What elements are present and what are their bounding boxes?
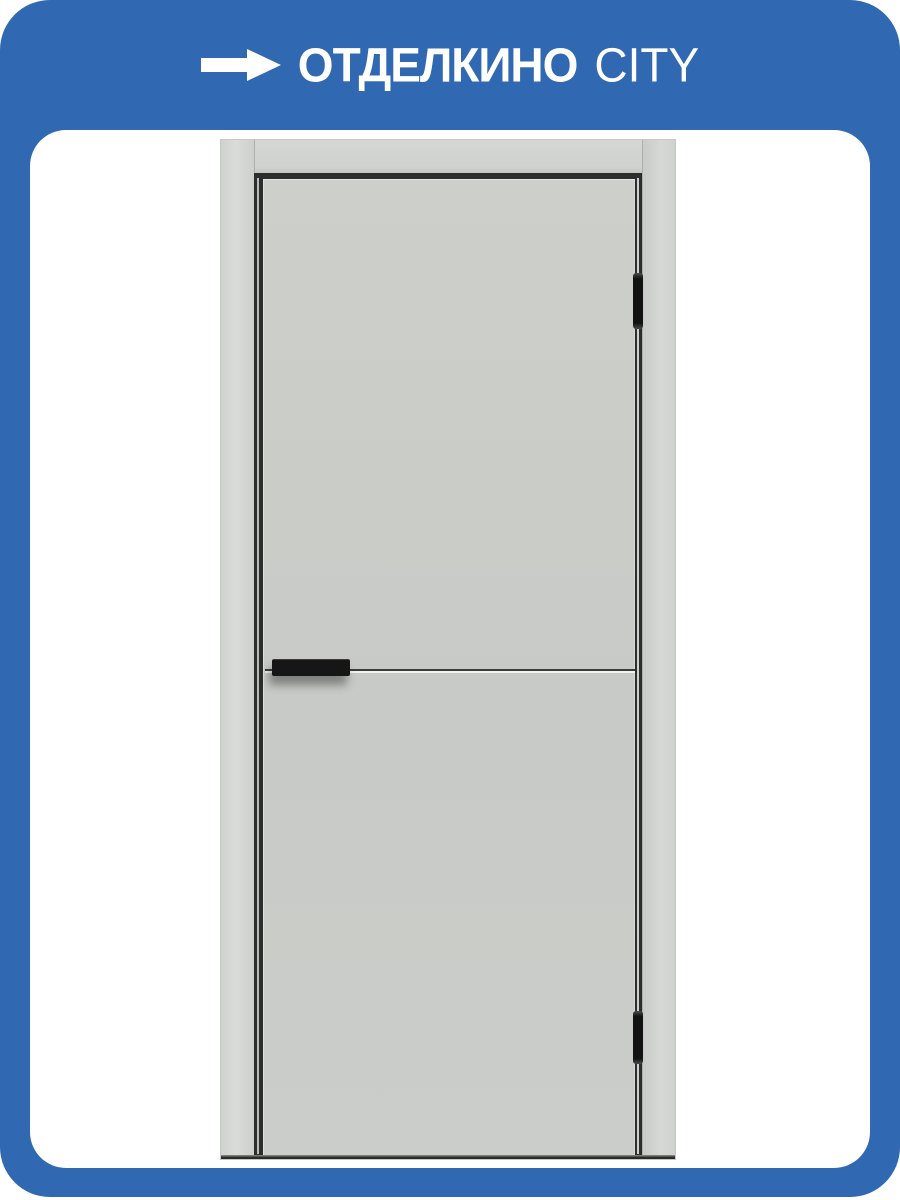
arrow-right-icon (201, 47, 281, 83)
brand-banner: ОТДЕЛКИНО CITY (0, 0, 900, 130)
door-frame-left-jamb (221, 140, 255, 1159)
door-bottom-shadow (221, 1155, 675, 1159)
brand-name: ОТДЕЛКИНО (298, 41, 578, 89)
door-frame-header (255, 140, 642, 173)
door-frame-right-jamb (642, 140, 675, 1159)
door-hinge-bottom (633, 1011, 643, 1064)
door-hinge-top (633, 273, 643, 329)
door-handle (272, 659, 350, 676)
door-stop-line-left (257, 178, 259, 1154)
door-product-image (220, 139, 676, 1160)
product-listing-image: ОТДЕЛКИНО CITY (0, 0, 900, 1200)
brand-suffix: CITY (594, 41, 699, 89)
